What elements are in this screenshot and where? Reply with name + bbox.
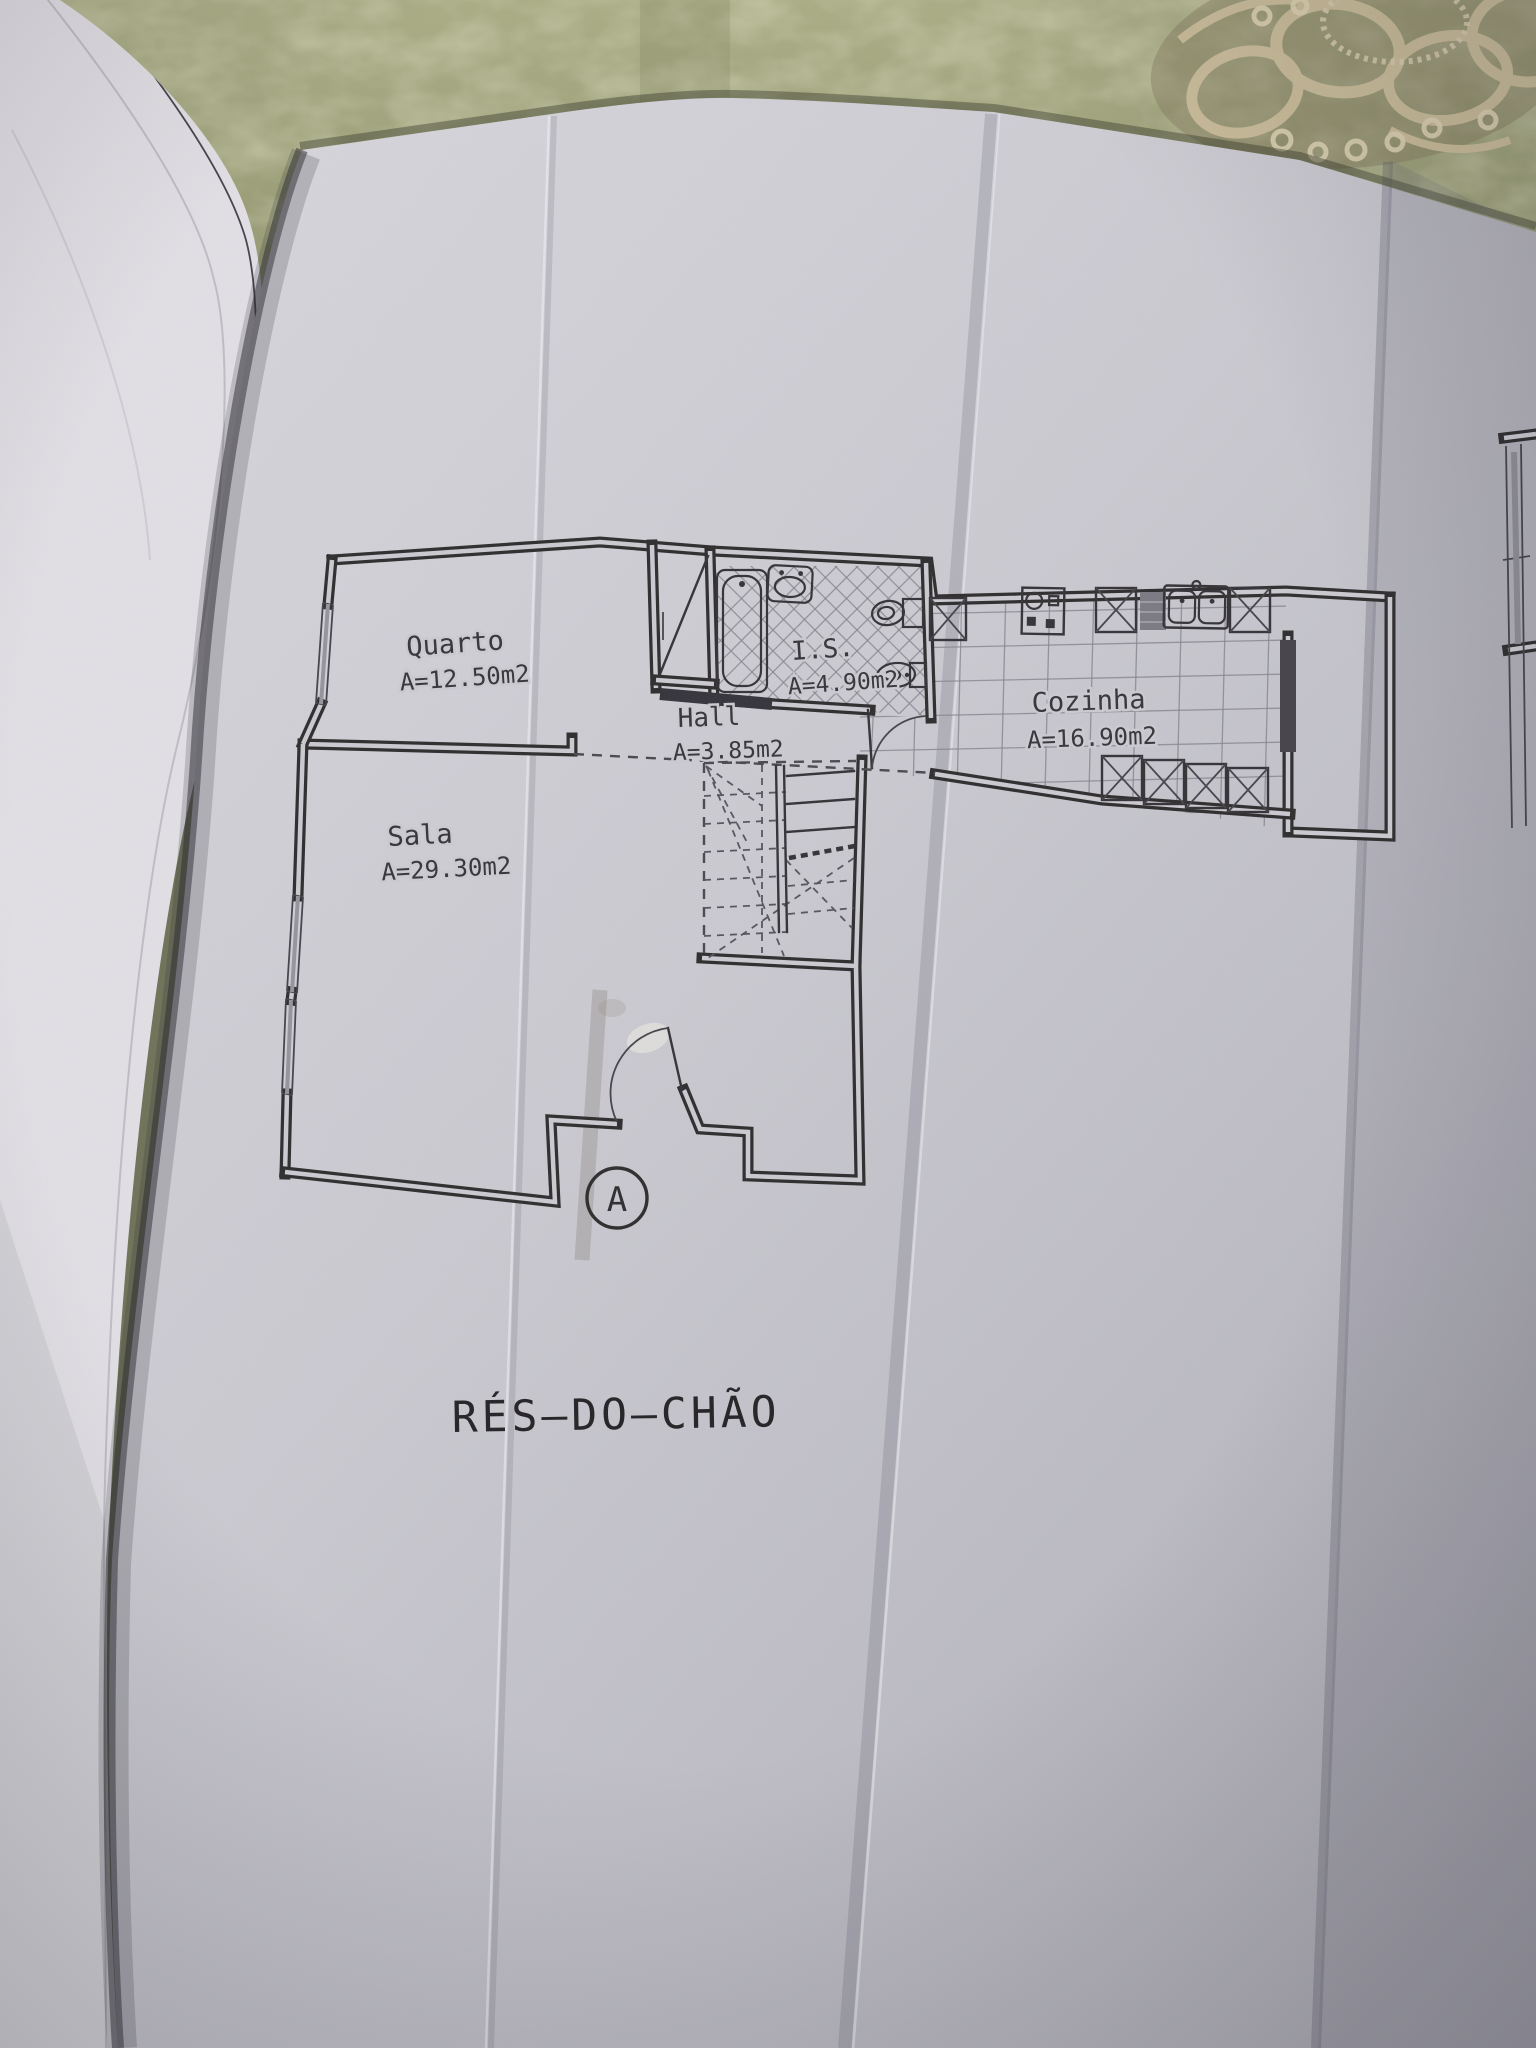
scene: A Quarto A=12.50m2 Sala A=29.30m2 Hall A… xyxy=(0,0,1536,2048)
vignette xyxy=(0,0,1536,2048)
photo-of-floor-plan: A Quarto A=12.50m2 Sala A=29.30m2 Hall A… xyxy=(0,0,1536,2048)
